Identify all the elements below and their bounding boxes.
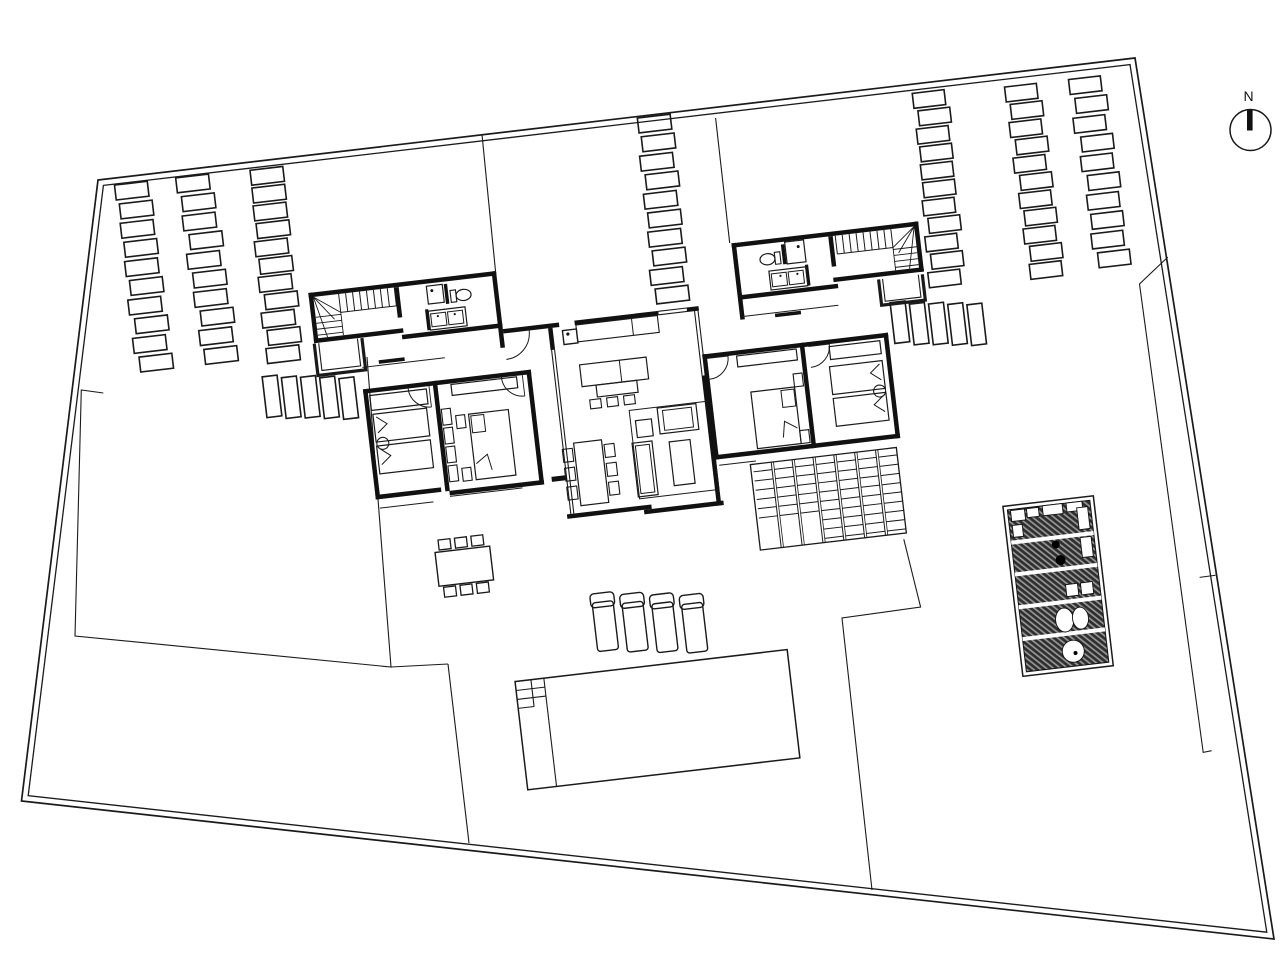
svg-text:N: N bbox=[1244, 88, 1254, 104]
